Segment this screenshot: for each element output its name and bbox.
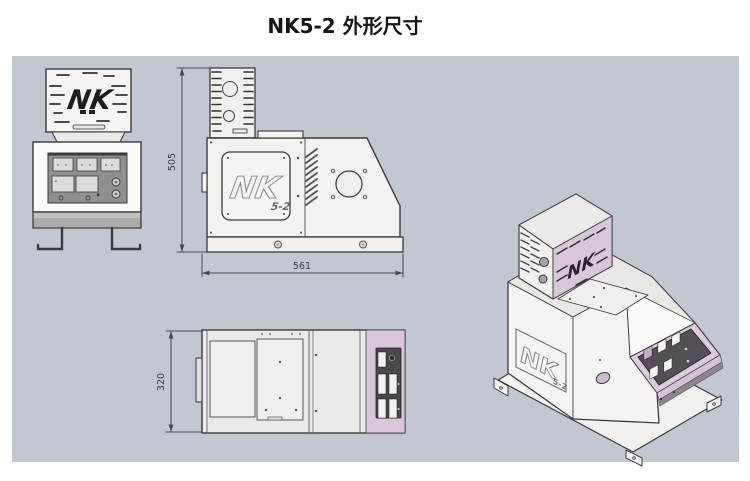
front-neck — [52, 132, 125, 142]
connector-slot — [378, 352, 386, 367]
side-box-hole-large — [223, 82, 238, 97]
gauge — [101, 158, 120, 171]
front-gauges-row-top — [53, 158, 120, 171]
dimension-label-depth: 320 — [156, 373, 167, 391]
top-cover-left — [210, 341, 255, 417]
side-base-plate — [207, 237, 403, 252]
gauge — [76, 176, 98, 192]
front-top-slot — [73, 125, 105, 129]
technical-drawing-page: NK5-2 外形尺寸 NK — [0, 0, 750, 481]
iso-top-unit-hole — [540, 258, 549, 267]
top-cover-right — [257, 339, 303, 420]
side-box-hole-small — [224, 111, 235, 122]
iso-top-unit-hole — [539, 275, 547, 283]
side-top-tab — [258, 131, 303, 138]
gauge — [52, 176, 74, 192]
top-cover-slot — [268, 417, 282, 420]
connector-round-port — [389, 355, 394, 360]
connector-slot — [389, 374, 397, 394]
front-view: NK — [33, 69, 141, 249]
side-box-slot — [233, 129, 247, 133]
drawing: NK5-2 外形尺寸 NK — [0, 0, 750, 481]
page-title: NK5-2 外形尺寸 — [267, 14, 422, 38]
connector-slot — [378, 374, 386, 394]
dimension-label-height: 505 — [167, 153, 178, 171]
panel-top-edge — [48, 153, 127, 156]
base-strip-highlight — [34, 213, 140, 218]
top-handle-tab — [196, 358, 202, 402]
connector-slot — [389, 399, 397, 418]
side-left-tab — [202, 173, 207, 192]
gauge — [53, 158, 73, 171]
side-model-label: 5-2 — [270, 201, 291, 213]
gauge — [77, 158, 97, 171]
side-circular-port — [336, 171, 362, 197]
connector-slot — [378, 399, 386, 418]
dimension-label-width: 561 — [293, 261, 311, 272]
